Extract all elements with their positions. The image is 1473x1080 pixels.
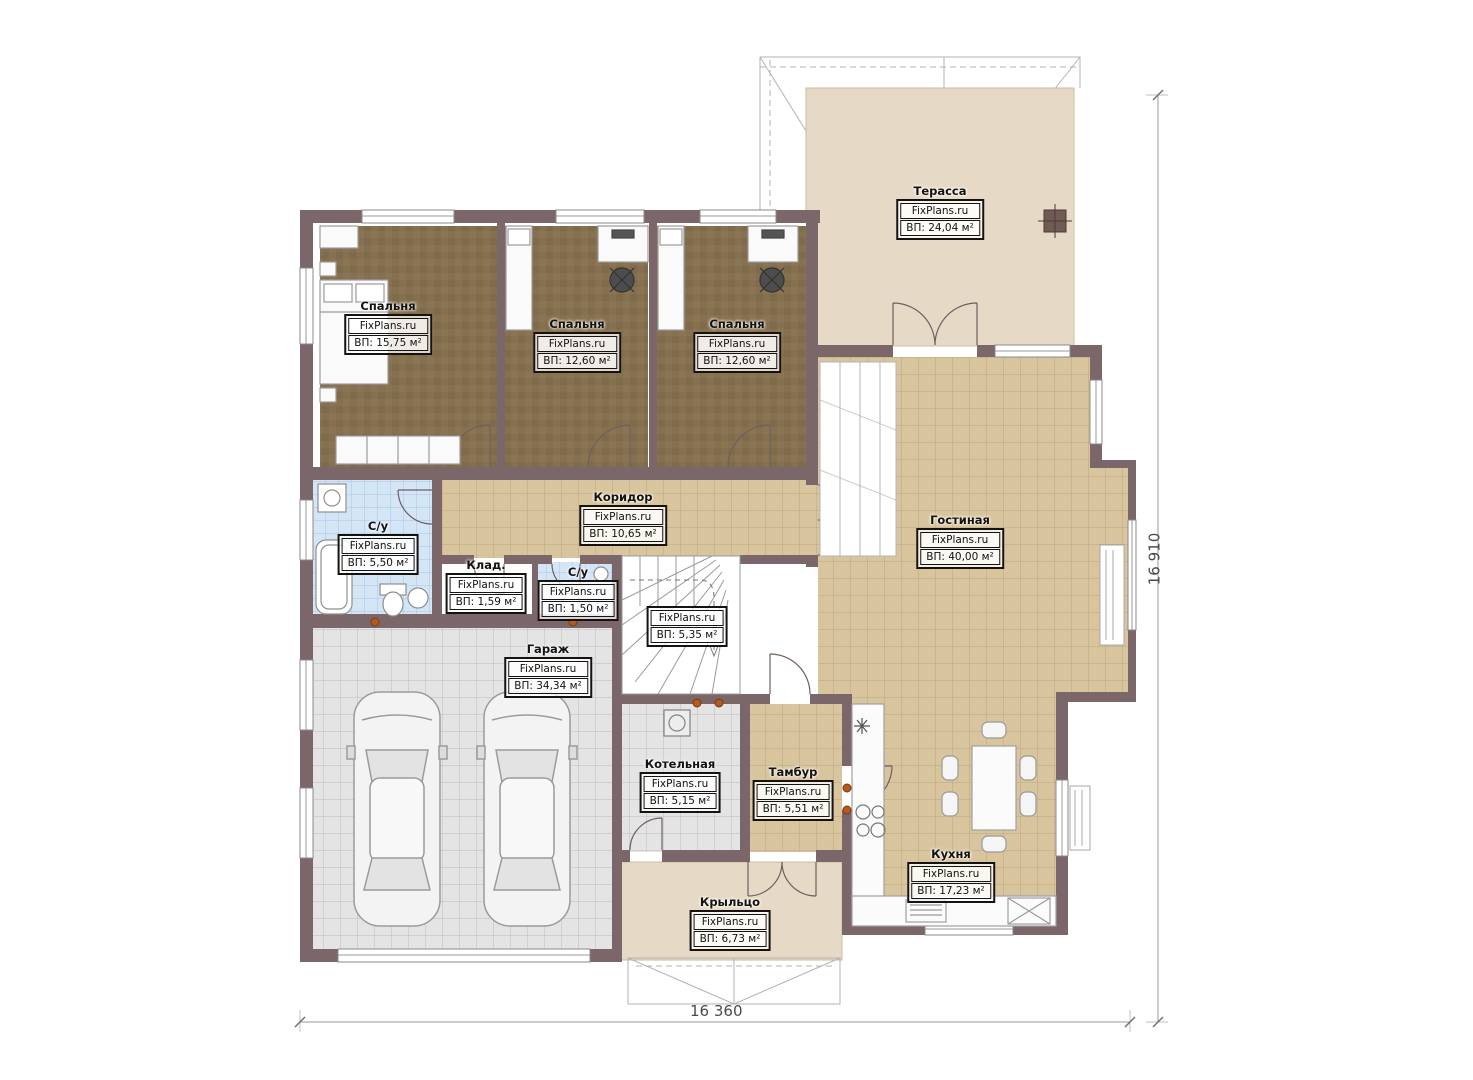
label-box: FixPlans.ru ВП: 1,50 м² <box>538 580 619 621</box>
brand-row: FixPlans.ru <box>697 336 777 352</box>
room-name: Терасса <box>896 185 984 198</box>
dimension-bottom-label: 16 360 <box>690 1002 743 1020</box>
room-label-kitchen: Кухня FixPlans.ru ВП: 17,23 м² <box>907 848 995 903</box>
boiler-unit <box>664 710 690 736</box>
room-label-stairs: FixPlans.ru ВП: 5,35 м² <box>647 606 728 647</box>
area-row: ВП: 17,23 м² <box>911 883 991 899</box>
room-label-vestibule: Тамбур FixPlans.ru ВП: 5,51 м² <box>753 766 834 821</box>
room-name: Кухня <box>907 848 995 861</box>
room-label-garage: Гараж FixPlans.ru ВП: 34,34 м² <box>504 643 592 698</box>
room-label-corridor: Коридор FixPlans.ru ВП: 10,65 м² <box>579 491 667 546</box>
area-row: ВП: 34,34 м² <box>508 678 588 694</box>
room-name: Спальня <box>344 300 432 313</box>
brand-row: FixPlans.ru <box>542 584 615 600</box>
brand-row: FixPlans.ru <box>757 784 830 800</box>
area-row: ВП: 1,50 м² <box>542 601 615 617</box>
brand-row: FixPlans.ru <box>537 336 617 352</box>
washing-machine <box>318 484 346 512</box>
brand-row: FixPlans.ru <box>651 610 724 626</box>
label-box: FixPlans.ru ВП: 17,23 м² <box>907 862 995 903</box>
room-label-living-room: Гостиная FixPlans.ru ВП: 40,00 м² <box>916 514 1004 569</box>
label-box: FixPlans.ru ВП: 5,51 м² <box>753 780 834 821</box>
room-label-bedroom-3: Спальня FixPlans.ru ВП: 12,60 м² <box>693 318 781 373</box>
brand-row: FixPlans.ru <box>900 203 980 219</box>
garage-car-2 <box>477 692 577 926</box>
brand-row: FixPlans.ru <box>644 776 717 792</box>
room-label-storage: Клад. FixPlans.ru ВП: 1,59 м² <box>446 559 527 614</box>
label-box: FixPlans.ru ВП: 12,60 м² <box>533 332 621 373</box>
brand-row: FixPlans.ru <box>348 318 428 334</box>
room-name: С/у <box>538 566 619 579</box>
label-box: FixPlans.ru ВП: 5,15 м² <box>640 772 721 813</box>
garage-car-1 <box>347 692 447 926</box>
room-name: Гараж <box>504 643 592 656</box>
porch-roof-outline <box>628 958 840 1004</box>
brand-row: FixPlans.ru <box>450 577 523 593</box>
kitchen-radiator <box>1070 786 1090 850</box>
room-label-boiler-room: Котельная FixPlans.ru ВП: 5,15 м² <box>640 758 721 813</box>
area-row: ВП: 5,15 м² <box>644 793 717 809</box>
label-box: FixPlans.ru ВП: 34,34 м² <box>504 657 592 698</box>
room-name: С/у <box>338 520 419 533</box>
area-row: ВП: 15,75 м² <box>348 335 428 351</box>
brand-row: FixPlans.ru <box>508 661 588 677</box>
dishwasher <box>906 900 946 922</box>
brand-row: FixPlans.ru <box>920 532 1000 548</box>
label-box: FixPlans.ru ВП: 24,04 м² <box>896 199 984 240</box>
boiler-fixtures <box>664 710 690 736</box>
label-box: FixPlans.ru ВП: 10,65 м² <box>579 505 667 546</box>
brand-row: FixPlans.ru <box>694 914 767 930</box>
area-row: ВП: 12,60 м² <box>697 353 777 369</box>
room-label-terrace: Терасса FixPlans.ru ВП: 24,04 м² <box>896 185 984 240</box>
label-box: FixPlans.ru ВП: 5,35 м² <box>647 606 728 647</box>
room-label-bathroom-2: С/у FixPlans.ru ВП: 1,50 м² <box>538 566 619 621</box>
room-name: Спальня <box>693 318 781 331</box>
room-label-bedroom-1: Спальня FixPlans.ru ВП: 15,75 м² <box>344 300 432 355</box>
brand-row: FixPlans.ru <box>911 866 991 882</box>
area-row: ВП: 5,50 м² <box>342 555 415 571</box>
room-name: Спальня <box>533 318 621 331</box>
area-row: ВП: 12,60 м² <box>537 353 617 369</box>
label-box: FixPlans.ru ВП: 6,73 м² <box>690 910 771 951</box>
dimension-right-label: 16 910 <box>1145 533 1163 586</box>
room-name: Гостиная <box>916 514 1004 527</box>
floor-plan-page: Спальня FixPlans.ru ВП: 15,75 м² Спальня… <box>0 0 1473 1080</box>
label-box: FixPlans.ru ВП: 15,75 м² <box>344 314 432 355</box>
brand-row: FixPlans.ru <box>342 538 415 554</box>
room-label-porch: Крыльцо FixPlans.ru ВП: 6,73 м² <box>690 896 771 951</box>
area-row: ВП: 6,73 м² <box>694 931 767 947</box>
room-name: Тамбур <box>753 766 834 779</box>
label-box: FixPlans.ru ВП: 1,59 м² <box>446 573 527 614</box>
label-box: FixPlans.ru ВП: 40,00 м² <box>916 528 1004 569</box>
area-row: ВП: 10,65 м² <box>583 526 663 542</box>
room-label-bedroom-2: Спальня FixPlans.ru ВП: 12,60 м² <box>533 318 621 373</box>
living-room-shelving <box>820 362 896 556</box>
label-box: FixPlans.ru ВП: 5,50 м² <box>338 534 419 575</box>
room-name: Коридор <box>579 491 667 504</box>
area-row: ВП: 1,59 м² <box>450 594 523 610</box>
area-row: ВП: 5,51 м² <box>757 801 830 817</box>
brand-row: FixPlans.ru <box>583 509 663 525</box>
area-row: ВП: 24,04 м² <box>900 220 980 236</box>
room-label-bathroom-1: С/у FixPlans.ru ВП: 5,50 м² <box>338 520 419 575</box>
room-name: Крыльцо <box>690 896 771 909</box>
dining-table <box>972 746 1016 830</box>
sink <box>408 588 428 608</box>
area-row: ВП: 40,00 м² <box>920 549 1000 565</box>
bay-window-bench <box>1100 545 1124 645</box>
kitchen-counter-left <box>852 704 884 904</box>
area-row: ВП: 5,35 м² <box>651 627 724 643</box>
room-name: Котельная <box>640 758 721 771</box>
room-name: Клад. <box>446 559 527 572</box>
label-box: FixPlans.ru ВП: 12,60 м² <box>693 332 781 373</box>
